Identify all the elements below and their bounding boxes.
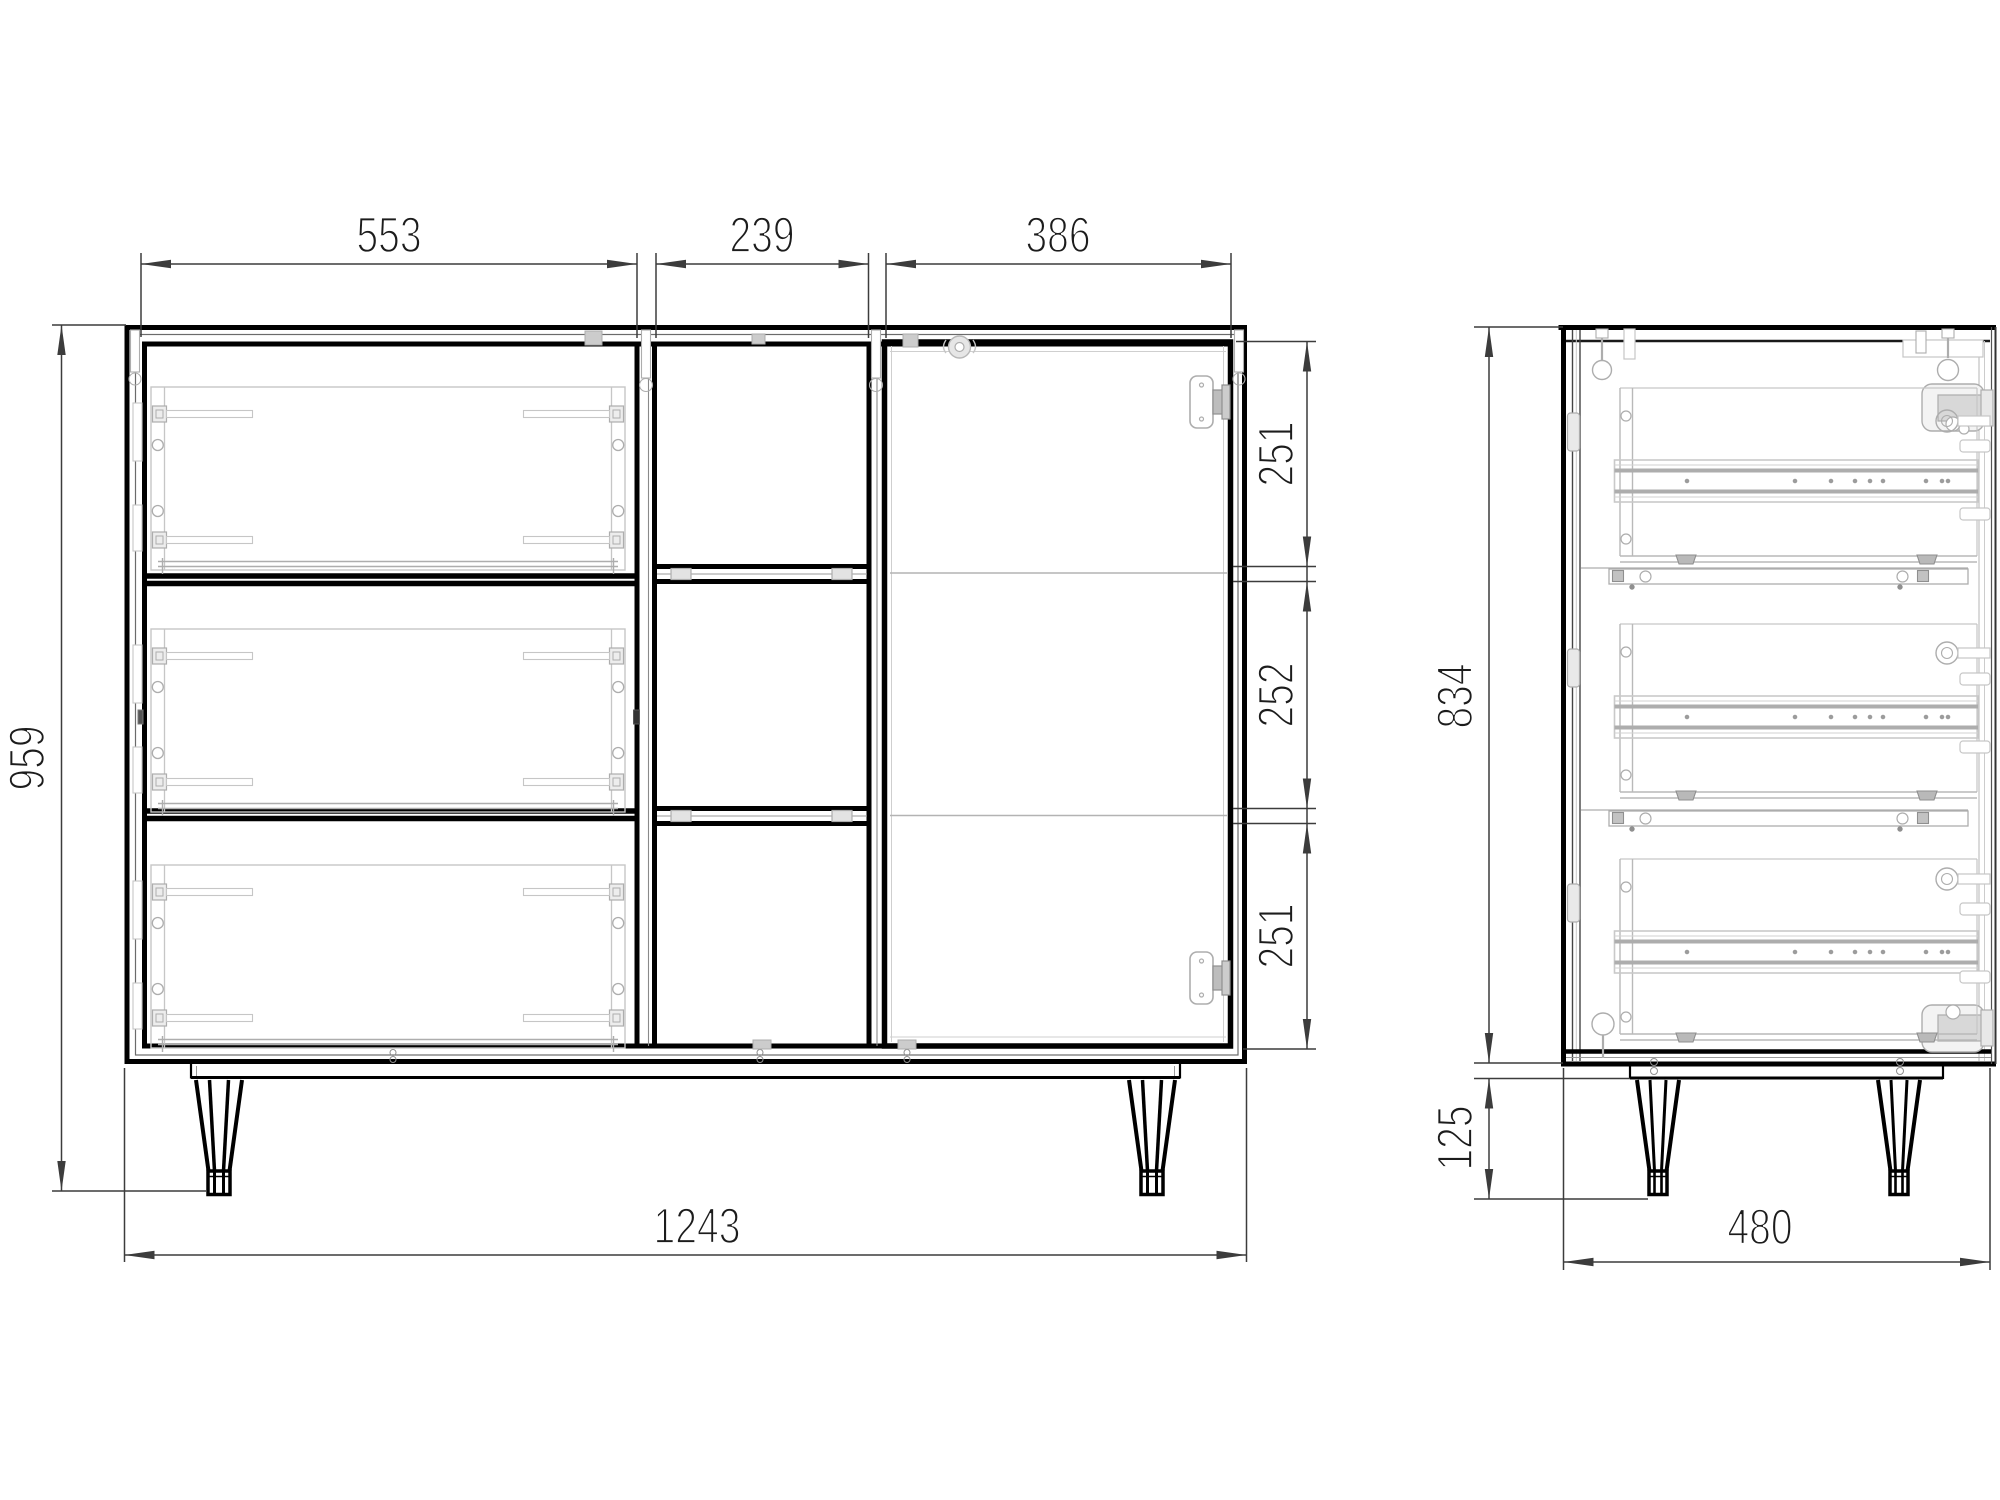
- svg-text:480: 480: [1728, 1199, 1793, 1255]
- svg-text:252: 252: [1248, 663, 1304, 728]
- svg-text:1243: 1243: [654, 1198, 741, 1254]
- svg-text:125: 125: [1427, 1106, 1483, 1171]
- svg-text:239: 239: [730, 207, 795, 263]
- svg-text:553: 553: [357, 207, 422, 263]
- svg-text:251: 251: [1248, 904, 1304, 969]
- svg-text:959: 959: [0, 726, 55, 791]
- svg-text:386: 386: [1026, 207, 1091, 263]
- svg-text:834: 834: [1427, 664, 1483, 729]
- svg-text:251: 251: [1248, 422, 1304, 487]
